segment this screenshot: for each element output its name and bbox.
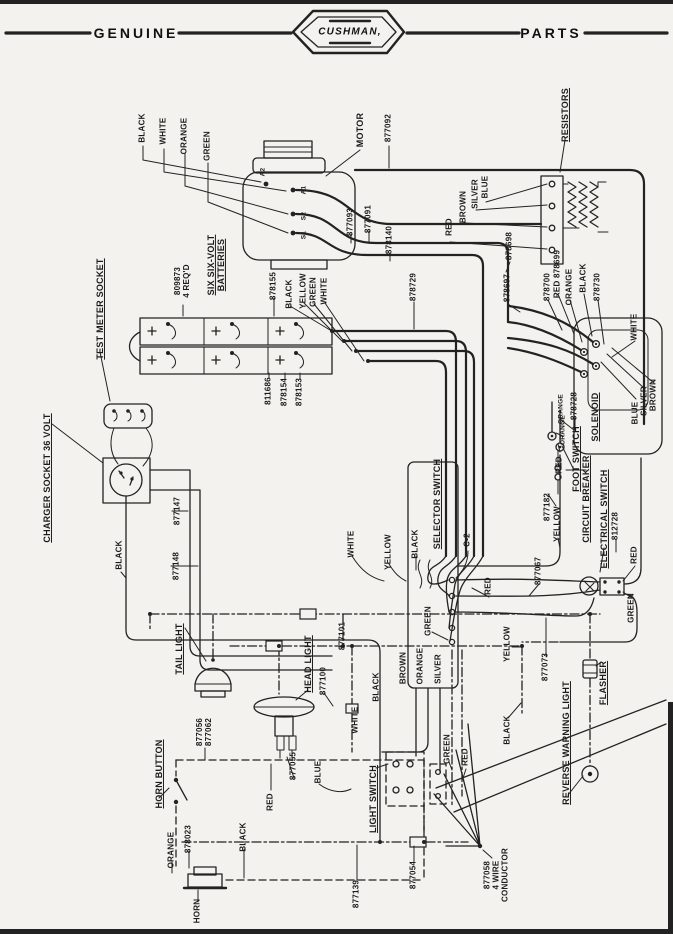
label-pn-877147: 877147 — [174, 497, 183, 525]
label-color-yellow-battery: YELLOW — [300, 273, 309, 309]
label-color-black-motor: BLACK — [139, 113, 148, 142]
label-pn-812728: 812728 — [612, 512, 621, 540]
label-color-silver-resistor: SILVER — [472, 179, 481, 209]
banner-brand-cushman: CUSHMAN, — [318, 27, 382, 38]
label-pn-877067: 877067 — [535, 557, 544, 585]
label-color-red-key: RED — [631, 546, 640, 564]
flasher-symbol — [583, 660, 597, 678]
label-pn-878140: 878140 — [386, 226, 395, 254]
label-pn-878699: RED 878699 — [554, 250, 563, 298]
label-pn-877148: 877148 — [173, 552, 182, 580]
label-light-switch: LIGHT SWITCH — [368, 765, 378, 833]
label-pn-877101: 877101 — [339, 622, 348, 650]
label-pn-878728: 878728 — [571, 392, 580, 420]
label-color-black-battery: BLACK — [286, 279, 295, 308]
label-color-green-selector: GREEN — [425, 606, 434, 636]
label-color-black-bottom: BLACK — [504, 715, 513, 744]
label-reverse-warning-light: REVERSE WARNING LIGHT — [561, 681, 571, 805]
label-color-white-selector: WHITE — [348, 530, 357, 557]
label-color-brown-resistor: BROWN — [460, 191, 469, 223]
label-term-s2: S2 — [300, 212, 307, 220]
label-color-brown-solenoid: BROWN — [650, 379, 659, 411]
label-color-yellow-selector: YELLOW — [385, 534, 394, 570]
label-color-green-battery: GREEN — [310, 277, 319, 307]
label-term-a1: A1 — [300, 186, 307, 195]
label-pn-877091: 877091 — [365, 205, 374, 233]
label-pn-877054: 877054 — [410, 861, 419, 889]
horn-symbol — [184, 867, 226, 888]
label-pn-878697: 878697 — [504, 274, 513, 302]
reverse-warning-light-symbol — [582, 766, 598, 782]
banner-genuine: GENUINE — [94, 25, 179, 41]
label-tail-light: TAIL LIGHT — [174, 623, 184, 674]
label-color-yellow-right: YELLOW — [504, 626, 513, 662]
label-color-red-resistor: RED — [446, 218, 455, 236]
label-color-orange-motor: ORANGE — [181, 118, 190, 155]
label-motor: MOTOR — [355, 113, 365, 148]
label-circuit-breaker: CIRCUIT BREAKER — [581, 455, 591, 542]
label-term-a2: A2 — [259, 168, 266, 177]
resistor-symbol — [541, 176, 608, 264]
charger-socket-symbol — [103, 428, 152, 503]
horn-button-symbol — [174, 778, 187, 804]
label-horn: HORN — [194, 899, 203, 924]
label-pn-877100: 877100 — [320, 667, 329, 695]
label-color-blue-resistor: BLUE — [482, 176, 491, 199]
label-pn-878730: 878730 — [594, 273, 603, 301]
label-flasher: FLASHER — [598, 661, 608, 705]
label-color-black-horn: BLACK — [240, 822, 249, 851]
banner-parts: PARTS — [520, 25, 581, 41]
label-pn-877139: 877139 — [353, 880, 362, 908]
label-head-light: HEAD LIGHT — [303, 635, 313, 693]
label-charger-socket: CHARGER SOCKET 36 VOLT — [42, 413, 52, 542]
label-test-meter-socket: TEST METER SOCKET — [95, 258, 105, 359]
label-color-black-selector: BLACK — [412, 529, 421, 558]
label-color-red-horn: RED — [267, 793, 276, 811]
label-horn-button: HORN BUTTON — [154, 739, 164, 808]
label-color-white-head: WHITE — [352, 706, 361, 733]
label-color-red-selector: RED — [485, 577, 494, 595]
label-resistors: RESISTORS — [560, 88, 570, 142]
label-color-orange-solenoid-top: ORANGE — [566, 269, 575, 306]
label-color-white-motor: WHITE — [160, 117, 169, 144]
label-color-black-center: BLACK — [373, 672, 382, 701]
label-foot-switch: FOOT SWITCH — [571, 426, 581, 492]
label-color-black-charger: BLACK — [116, 540, 125, 569]
label-pn-811686: 811686 — [265, 377, 274, 405]
label-pn-878023: 878023 — [185, 825, 194, 853]
label-c2: C-2 — [464, 533, 473, 547]
head-light-symbol — [254, 697, 314, 758]
label-pn-877093: 877093 — [347, 208, 356, 236]
label-pn-878154: 878154 — [281, 378, 290, 406]
light-switch-terminals — [393, 761, 440, 798]
test-meter-socket-symbol — [104, 404, 152, 428]
label-color-orange-selector: ORANGE — [417, 648, 426, 685]
label-pn-878700: 878700 — [544, 273, 553, 301]
label-color-green-key: GREEN — [628, 593, 637, 623]
label-pn-877073: 877073 — [542, 653, 551, 681]
label-color-silver-selector: SILVER — [435, 654, 444, 684]
label-color-brown-selector: BROWN — [400, 652, 409, 684]
label-solenoid: SOLENOID — [590, 392, 600, 441]
label-selector-switch: SELECTOR SWITCH — [432, 459, 442, 550]
label-pn-877092: 877092 — [385, 114, 394, 142]
label-term-s1: S1 — [300, 231, 307, 239]
label-pn-878698: 878698 — [506, 232, 515, 260]
label-color-green-bottom: GREEN — [444, 734, 453, 764]
label-pn-809873: 809873 4 REQ'D — [174, 264, 192, 297]
label-pn-878155: 878155 — [270, 272, 279, 300]
label-pn-877056-877062: 877056 877062 — [196, 718, 214, 746]
label-pn-877182: 877182 — [544, 493, 553, 521]
label-color-green-motor: GREEN — [204, 131, 213, 161]
label-color-blue-light: BLUE — [315, 761, 324, 784]
label-batteries: SIX SIX-VOLT BATTERIES — [206, 235, 226, 296]
label-color-black-solenoid-top: BLACK — [580, 263, 589, 292]
battery-bank-symbol — [130, 318, 371, 374]
label-color-orange-horn: ORANGE — [168, 832, 177, 869]
wiring-diagram-page: GENUINE CUSHMAN, PARTS BLACKWHITEORANGEG… — [0, 0, 673, 934]
label-color-white-battery: WHITE — [321, 277, 330, 304]
label-color-orange-foot: ORANGE — [559, 415, 566, 445]
label-electrical-switch: ELECTRICAL SWITCH — [599, 469, 609, 568]
label-color-yellow-foot: YELLOW — [554, 506, 563, 542]
label-color-white-right: WHITE — [631, 313, 640, 340]
horn-circuit-wires — [176, 752, 446, 880]
label-color-red-bottom: RED — [462, 748, 471, 766]
label-pn-878729: 878729 — [410, 273, 419, 301]
label-pn-878153: 878153 — [296, 378, 305, 406]
label-pn-877055: 877055 — [290, 752, 299, 780]
label-color-red-foot: RED — [556, 456, 565, 474]
label-pn-877058: 877058 4 WIRE CONDUCTOR — [484, 848, 511, 902]
